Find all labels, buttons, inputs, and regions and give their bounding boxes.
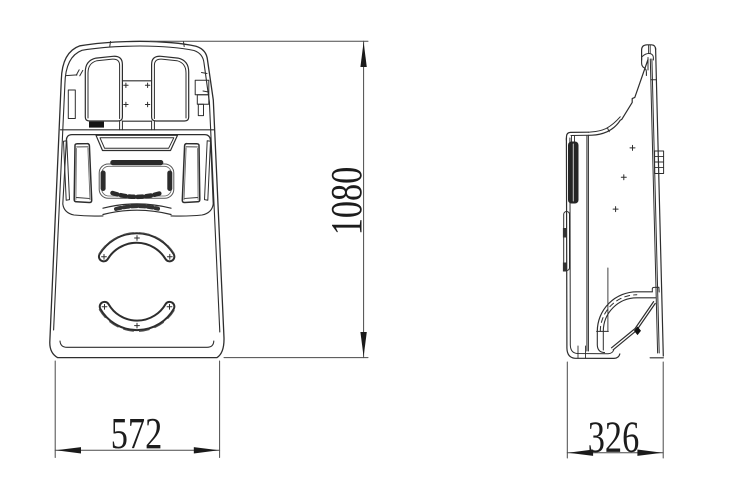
svg-text:1080: 1080 — [322, 167, 371, 236]
svg-text:326: 326 — [588, 412, 639, 461]
svg-text:572: 572 — [111, 409, 162, 458]
